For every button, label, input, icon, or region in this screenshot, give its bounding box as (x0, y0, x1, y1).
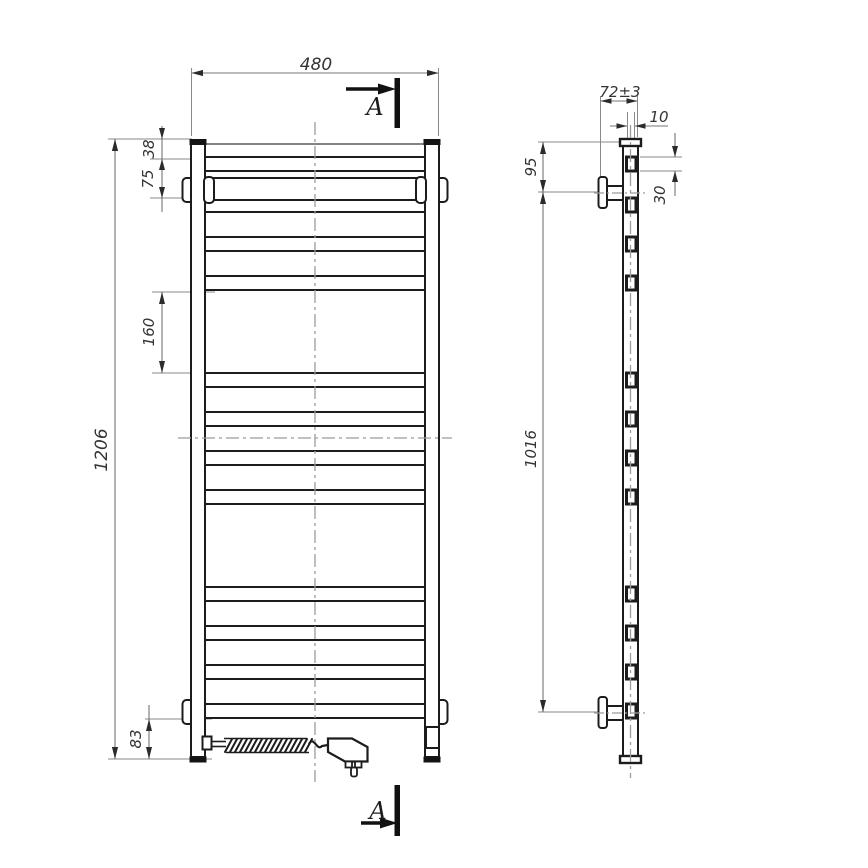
coiled-cable (225, 739, 312, 752)
rung-section (627, 373, 637, 387)
technical-drawing-towel-rail: A A 480 1206 38 75 160 83 (0, 0, 868, 868)
rung-section (627, 276, 637, 290)
cord-fitting (203, 737, 212, 750)
plug-body (328, 739, 368, 762)
dim-height: 1206 (92, 428, 112, 471)
dim-rung-height: 30 (651, 185, 669, 204)
dim-bracket-spacing: 1016 (522, 430, 540, 468)
rung-section (627, 665, 637, 679)
front-right-post (425, 140, 439, 757)
dim-width: 480 (300, 55, 332, 75)
section-mark-top: A (346, 78, 400, 128)
rung-section (627, 412, 637, 426)
dim-top-offset: 38 (140, 139, 158, 158)
front-view: A A 480 1206 38 75 160 83 (92, 55, 452, 836)
heating-element-housing (426, 727, 439, 748)
rung-section (627, 451, 637, 465)
plug-contact (346, 762, 353, 768)
rung-section (627, 157, 637, 171)
section-label-bottom: A (367, 797, 386, 825)
power-cord (203, 737, 368, 777)
rung-section (627, 198, 637, 212)
dim-rung-depth: 10 (649, 108, 668, 126)
cord-wiggle (309, 741, 328, 747)
dim-top-bracket: 95 (522, 157, 540, 176)
dim-bottom-offset: 83 (127, 729, 145, 748)
rung-section (627, 704, 637, 718)
shelf-end-hook (204, 177, 214, 203)
section-mark-bottom: A (361, 785, 400, 836)
rung-section (627, 626, 637, 640)
rung-section (627, 490, 637, 504)
dim-rung-pitch: 75 (139, 169, 157, 188)
drawing-svg: A A 480 1206 38 75 160 83 (0, 0, 868, 868)
side-view: 72±3 10 30 95 1016 (522, 83, 682, 778)
shelf-end-hook (416, 177, 426, 203)
plug-contact (355, 762, 362, 768)
section-label-top: A (364, 93, 383, 121)
side-wall-brackets (599, 177, 625, 728)
dim-group-gap: 160 (140, 318, 158, 347)
front-left-post (191, 140, 205, 757)
rung-section (627, 237, 637, 251)
rung-section (627, 587, 637, 601)
dim-depth: 72±3 (599, 83, 640, 101)
plug-pin (351, 768, 357, 777)
